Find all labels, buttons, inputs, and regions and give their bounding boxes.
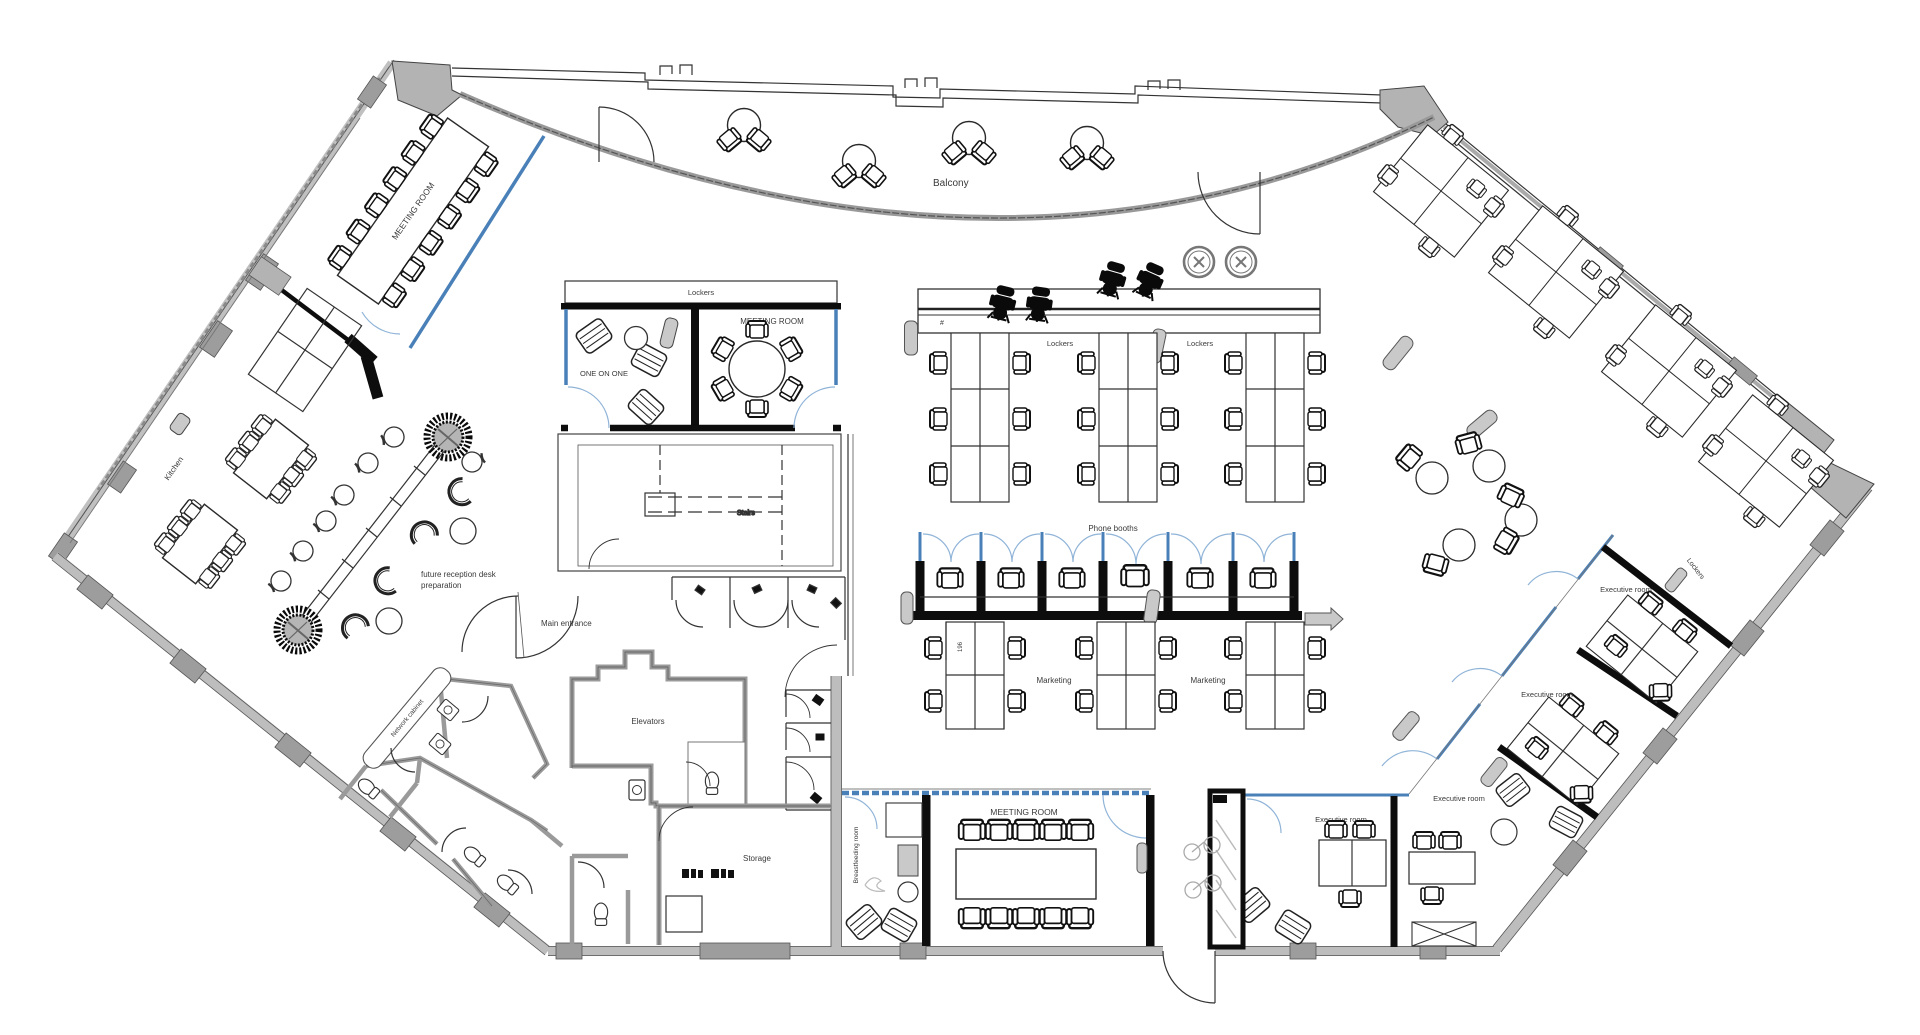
- svg-text:Main entrance: Main entrance: [541, 619, 592, 628]
- svg-text:Phone booths: Phone booths: [1088, 524, 1137, 533]
- svg-text:Executive room: Executive room: [1433, 794, 1485, 803]
- svg-text:MEETING ROOM: MEETING ROOM: [990, 807, 1058, 817]
- svg-text:Lockers: Lockers: [1187, 339, 1214, 348]
- svg-text:Balcony: Balcony: [933, 178, 969, 189]
- svg-text:Lockers: Lockers: [688, 288, 715, 297]
- svg-text:Stairs: Stairs: [737, 510, 755, 517]
- svg-text:Marketing: Marketing: [1036, 676, 1071, 685]
- svg-text:Elevators: Elevators: [631, 717, 664, 726]
- svg-text:Breastfeeding room: Breastfeeding room: [853, 827, 860, 884]
- svg-text:Executive room: Executive room: [1521, 690, 1573, 699]
- svg-text:196: 196: [958, 641, 964, 652]
- svg-text:preparation: preparation: [421, 581, 461, 590]
- svg-text:future reception desk: future reception desk: [421, 570, 497, 579]
- svg-text:Executive room: Executive room: [1600, 585, 1652, 594]
- svg-text:#: #: [940, 320, 944, 327]
- svg-text:Lockers: Lockers: [1047, 339, 1074, 348]
- svg-text:ONE ON ONE: ONE ON ONE: [580, 369, 628, 378]
- svg-text:Storage: Storage: [743, 854, 772, 863]
- svg-text:Marketing: Marketing: [1190, 676, 1225, 685]
